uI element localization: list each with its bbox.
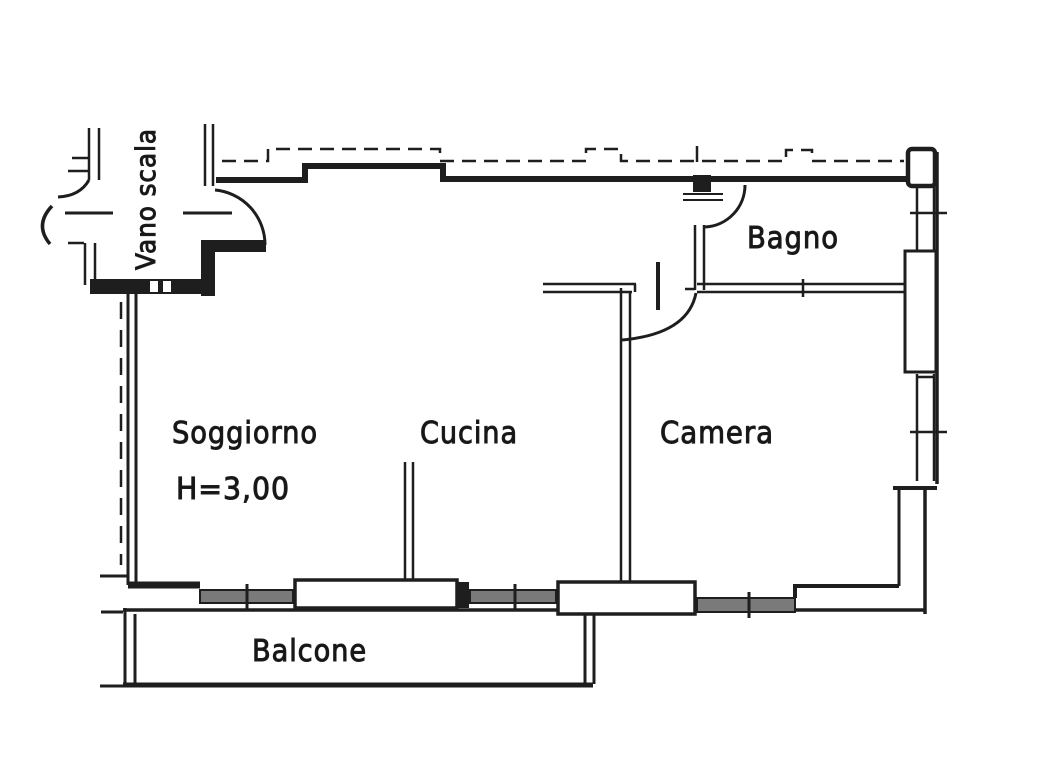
- entry-door-arc: [215, 190, 265, 245]
- bottom-wall-pier: [558, 582, 695, 614]
- bagno-bottom-wall: [697, 284, 906, 292]
- top-dashed-outline: [222, 149, 904, 161]
- stairwell-upper-curve: [58, 180, 89, 197]
- room-label-soggiorno: Soggiorno: [172, 416, 318, 451]
- left-wall: [121, 289, 136, 585]
- balcony-door: [295, 580, 457, 608]
- top-wall: [216, 146, 906, 192]
- room-height-note: H=3,00: [176, 472, 290, 507]
- right-wall-pillar: [908, 149, 935, 186]
- stairwell-right-wall: [205, 124, 213, 186]
- stairwell-upper-left-wall: [89, 128, 99, 180]
- balcony-right-wall: [585, 614, 594, 684]
- top-wall-line: [216, 166, 906, 180]
- right-window-2: [917, 374, 934, 481]
- room-label-bagno: Bagno: [747, 221, 839, 256]
- right-window-wide: [905, 251, 936, 372]
- right-wall: [893, 149, 947, 614]
- bagno-left-wall: [685, 225, 704, 290]
- stairwell-bottom-slit-2: [163, 281, 171, 292]
- bagno-door-leaf: [683, 194, 723, 200]
- bagno-wall-junction: [693, 175, 711, 192]
- bathroom: Bagno: [683, 185, 906, 297]
- room-label-balcone: Balcone: [252, 634, 367, 669]
- entry-wall-stub: [201, 240, 266, 252]
- room-label-camera: Camera: [660, 416, 774, 451]
- floor-plan-page: Balcone Vano scala Bagno Cam: [0, 0, 1038, 768]
- stairwell: Vano scala: [42, 124, 266, 296]
- room-label-cucina: Cucina: [420, 416, 518, 451]
- left-wall-lines: [128, 289, 136, 585]
- stairwell-upper-left-ticks: [68, 158, 89, 171]
- bedroom: Camera: [543, 262, 774, 583]
- bottom-wall-cap: [457, 582, 469, 608]
- floor-plan-svg: Balcone Vano scala Bagno Cam: [0, 0, 1038, 768]
- balcony-left-wall: [125, 608, 135, 686]
- stairwell-bottom-slit-1: [150, 281, 158, 292]
- window-cucina: [470, 590, 556, 603]
- camera-west-partition: [621, 288, 630, 583]
- living-kitchen: Soggiorno H=3,00 Cucina: [172, 416, 518, 581]
- room-label-vano-scala: Vano scala: [131, 128, 162, 270]
- right-window-1: [917, 186, 934, 250]
- cucina-partition: [405, 462, 413, 581]
- balcony: Balcone: [123, 608, 594, 686]
- bottom-inner-right: [795, 586, 899, 598]
- stairwell-lower-left-wall: [68, 243, 95, 285]
- stairwell-left-arc: [42, 206, 52, 244]
- bottom-wall: [100, 576, 924, 686]
- window-camera: [697, 598, 795, 612]
